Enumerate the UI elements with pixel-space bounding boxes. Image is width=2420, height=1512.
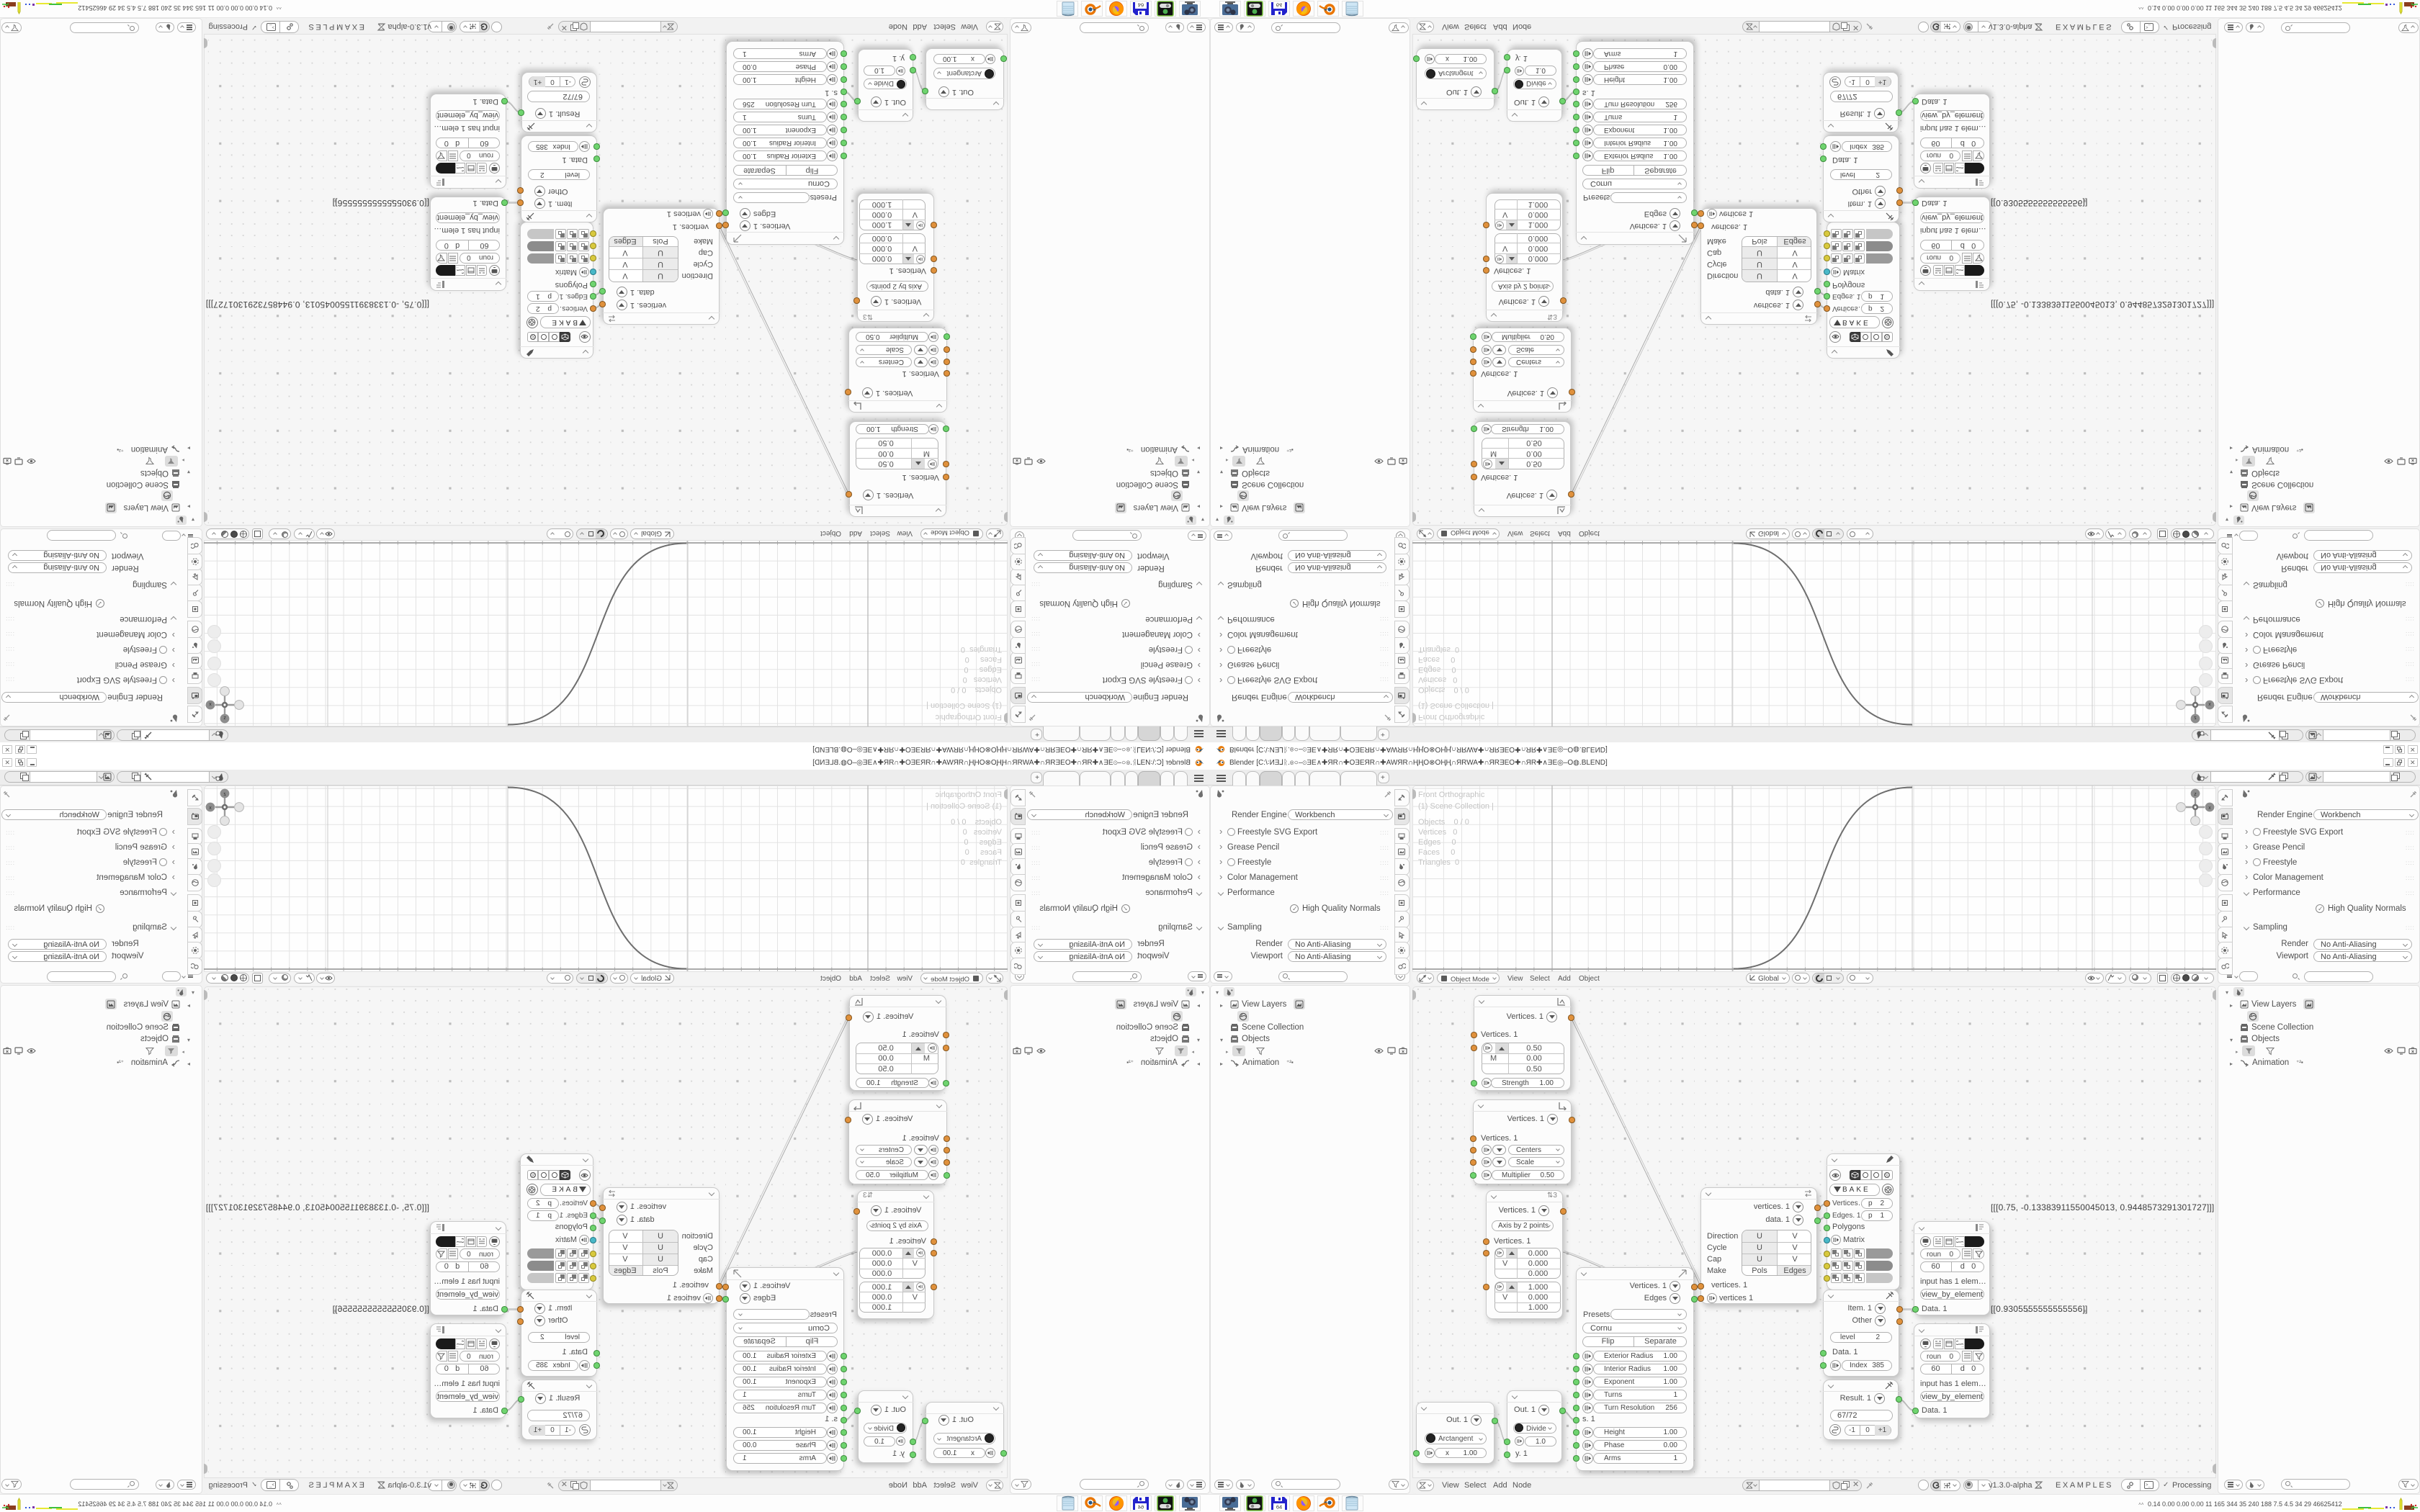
- svg-text:z: z: [223, 715, 226, 720]
- svg-text:x: x: [209, 701, 212, 706]
- svg-text:64: 64: [1276, 2, 1282, 9]
- svg-text:x: x: [2208, 701, 2211, 706]
- svg-text:x: x: [2208, 806, 2211, 811]
- svg-text:64: 64: [1138, 1504, 1144, 1511]
- svg-text:64: 64: [1276, 1504, 1282, 1511]
- svg-text:x: x: [209, 806, 212, 811]
- svg-text:z: z: [223, 792, 226, 797]
- svg-text:64: 64: [1138, 2, 1144, 9]
- svg-text:z: z: [2194, 715, 2197, 720]
- svg-text:z: z: [2194, 792, 2197, 797]
